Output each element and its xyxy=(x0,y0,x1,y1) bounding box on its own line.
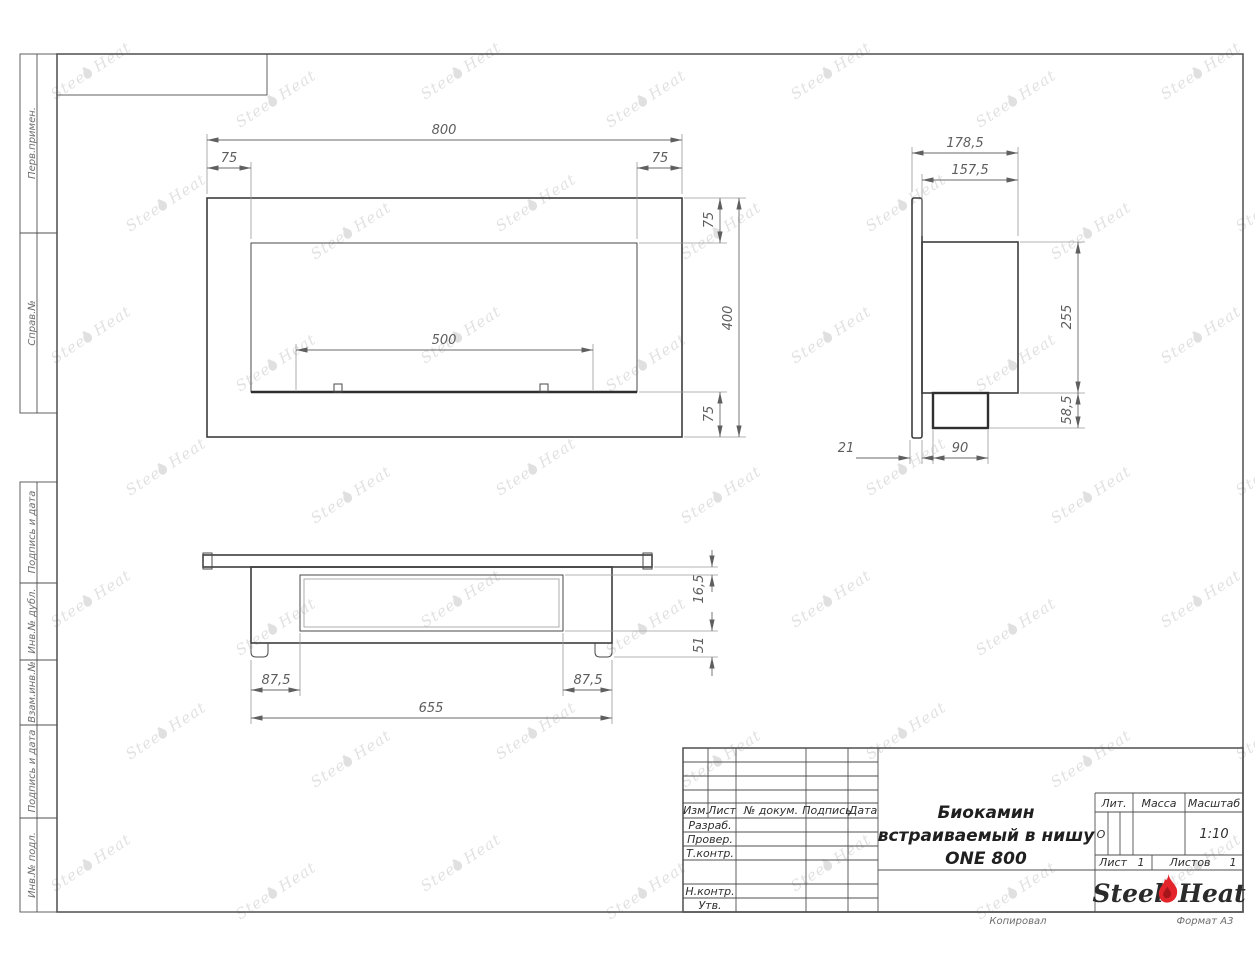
watermark-instance xyxy=(47,566,134,631)
watermark-instance xyxy=(787,566,874,631)
format-label: Формат А3 xyxy=(1177,916,1234,927)
dim-side-inner-depth: 157,5 xyxy=(951,163,988,178)
dim-front-total-width: 800 xyxy=(432,123,457,138)
watermark-instance xyxy=(492,698,579,763)
bottom-dimension-texts: 16,5 51 87,5 87,5 655 xyxy=(262,575,707,716)
watermark-instance xyxy=(492,434,579,499)
rev-col-izm: Изм. xyxy=(683,804,709,817)
dim-bottom-body-width: 655 xyxy=(419,701,444,716)
scale-label: Масштаб xyxy=(1188,797,1240,810)
row-prover: Провер. xyxy=(687,833,733,846)
watermark-instance xyxy=(122,698,209,763)
watermark-instance xyxy=(1047,198,1134,263)
dim-side-total-depth: 178,5 xyxy=(946,136,983,151)
front-plate xyxy=(203,555,652,567)
logo-text-steel: Steel xyxy=(1093,879,1164,908)
dim-bottom-right-inset: 87,5 xyxy=(574,673,603,688)
side-dimension-texts: 178,5 157,5 255 58,5 21 90 xyxy=(838,136,1075,456)
title-line-2: встраиваемый в нишу xyxy=(878,826,1095,846)
row-tkontr: Т.контр. xyxy=(686,847,734,860)
watermark-instance xyxy=(972,330,1059,395)
watermark-instance xyxy=(47,302,134,367)
dim-front-top-offset: 75 xyxy=(702,212,717,229)
drawing-title: Биокамин встраиваемый в нишу ONE 800 xyxy=(878,803,1095,869)
watermark-instance xyxy=(602,594,689,659)
dim-front-burner-width: 500 xyxy=(432,333,457,348)
rev-col-data: Дата xyxy=(848,804,878,817)
scale-value: 1:10 xyxy=(1199,827,1228,842)
sheets-label: Листов xyxy=(1168,856,1210,869)
watermark-instance xyxy=(417,566,504,631)
watermark-instance xyxy=(602,858,689,923)
watermark-instance xyxy=(677,726,764,791)
rev-col-list: Лист xyxy=(707,804,736,817)
side-col-perv-primen: Перв.примен. xyxy=(27,107,38,179)
mass-label: Масса xyxy=(1141,797,1176,810)
front-view: 800 75 75 75 400 75 500 xyxy=(207,123,746,437)
title-block: Изм. Лист № докум. Подпись Дата Разраб. … xyxy=(683,748,1246,927)
side-col-vzam-inv: Взам.инв.№ xyxy=(27,661,38,723)
dim-bottom-opening-to-feet: 51 xyxy=(692,637,707,654)
watermark-instance xyxy=(417,38,504,103)
dim-bottom-left-inset: 87,5 xyxy=(262,673,291,688)
watermark-instance xyxy=(232,330,319,395)
watermark-instance xyxy=(1157,38,1244,103)
watermark-instance xyxy=(47,830,134,895)
wall-flange xyxy=(912,198,922,438)
dim-front-total-height: 400 xyxy=(721,306,736,331)
title-line-1: Биокамин xyxy=(937,803,1034,823)
rev-col-podpis: Подпись xyxy=(802,804,851,817)
dim-side-body-height: 255 xyxy=(1060,305,1075,330)
watermark-instance xyxy=(602,330,689,395)
dim-side-tray-height: 58,5 xyxy=(1060,396,1075,425)
watermark-instance xyxy=(417,302,504,367)
side-view: 178,5 157,5 255 58,5 21 90 xyxy=(838,136,1085,464)
row-utv: Утв. xyxy=(698,899,721,912)
watermark-instance xyxy=(787,38,874,103)
dim-bottom-plate-to-opening: 16,5 xyxy=(692,575,707,604)
watermark-instance xyxy=(492,170,579,235)
watermark-instance xyxy=(972,66,1059,131)
side-col-sprav-no: Справ.№ xyxy=(27,300,38,345)
logo-text-heat: Heat xyxy=(1177,879,1246,908)
watermark-instance xyxy=(677,198,764,263)
dim-front-left-offset: 75 xyxy=(221,151,238,166)
sheet-label: Лист xyxy=(1098,856,1127,869)
left-column-labels: Перв.примен. Справ.№ Подпись и дата Инв.… xyxy=(26,107,38,898)
row-nkontr: Н.контр. xyxy=(685,885,734,898)
side-dimension-lines xyxy=(856,153,1078,458)
copied-label: Копировал xyxy=(989,916,1047,927)
watermark-instance xyxy=(232,66,319,131)
side-col-podpis-data-2: Подпись и дата xyxy=(27,730,38,813)
steelheat-logo: Steel Heat xyxy=(1093,874,1247,908)
lit-value: О xyxy=(1097,828,1106,841)
side-col-podpis-data-1: Подпись и дата xyxy=(27,491,38,574)
lit-label: Лит. xyxy=(1100,797,1126,810)
side-col-inv-dubl: Инв.№ дубл. xyxy=(26,588,38,653)
watermark-instance xyxy=(1157,566,1244,631)
sheet-value: 1 xyxy=(1138,856,1145,869)
row-razrab: Разраб. xyxy=(688,819,731,832)
watermark-instance xyxy=(972,594,1059,659)
title-line-3: ONE 800 xyxy=(945,849,1027,869)
watermark-instance xyxy=(1047,462,1134,527)
watermark-instance xyxy=(122,434,209,499)
watermark-instance xyxy=(232,858,319,923)
watermark-instance xyxy=(47,38,134,103)
watermark-instance xyxy=(677,462,764,527)
watermark-instance xyxy=(307,726,394,791)
dim-side-flange-thickness: 21 xyxy=(838,441,855,456)
watermark-instance xyxy=(602,66,689,131)
left-column-boxes xyxy=(20,54,57,912)
side-tray xyxy=(933,393,988,428)
dim-front-right-offset: 75 xyxy=(652,151,669,166)
watermark-instance xyxy=(787,830,874,895)
sheets-value: 1 xyxy=(1230,856,1237,869)
watermark-instance xyxy=(1047,726,1134,791)
side-extension-lines xyxy=(910,147,1085,464)
watermark-instance xyxy=(787,302,874,367)
side-col-inv-podl: Инв.№ подл. xyxy=(27,832,38,898)
dim-side-tray-depth: 90 xyxy=(952,441,969,456)
watermark-instance xyxy=(1157,302,1244,367)
watermark-instance xyxy=(307,462,394,527)
watermark-instance xyxy=(862,698,949,763)
rev-col-docnum: № докум. xyxy=(743,804,798,817)
dim-front-bottom-offset: 75 xyxy=(702,406,717,423)
watermark-instance xyxy=(122,170,209,235)
below-stamp-labels: Копировал Формат А3 xyxy=(989,916,1233,927)
watermark-instance xyxy=(417,830,504,895)
watermark-layer xyxy=(47,38,1255,923)
drawing-sheet: Steel Heat Перв.примен. Справ.№ Подпись … xyxy=(0,0,1255,970)
watermark-instance xyxy=(307,198,394,263)
watermark-instance xyxy=(862,434,949,499)
